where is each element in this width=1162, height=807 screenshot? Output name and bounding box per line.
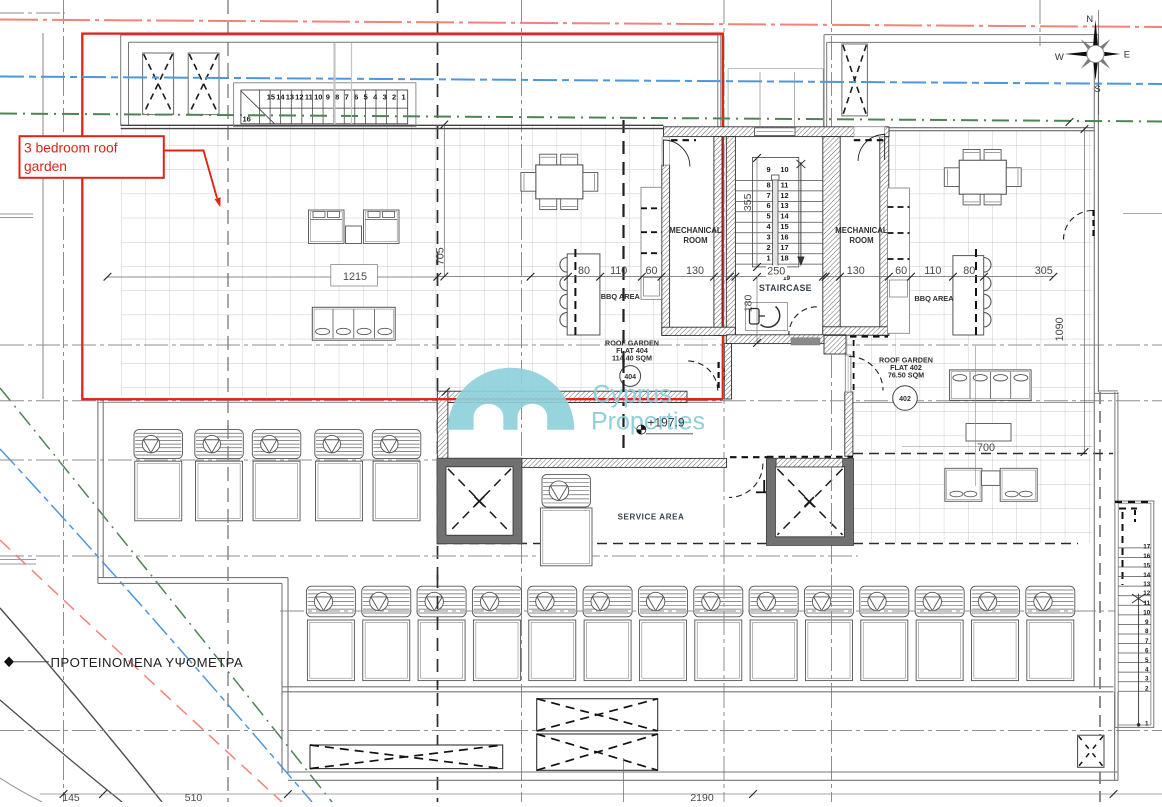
svg-text:60: 60 <box>895 265 907 277</box>
svg-text:9: 9 <box>766 165 770 174</box>
svg-text:7: 7 <box>766 191 770 200</box>
svg-text:11: 11 <box>1143 600 1150 607</box>
svg-text:705: 705 <box>435 247 447 265</box>
svg-text:110: 110 <box>924 265 941 277</box>
svg-text:402: 402 <box>899 396 911 403</box>
svg-text:12: 12 <box>780 191 788 200</box>
svg-text:ROOM: ROOM <box>849 236 873 245</box>
svg-text:17: 17 <box>780 243 788 252</box>
svg-text:6: 6 <box>354 92 358 101</box>
svg-text:ROOM: ROOM <box>683 236 707 245</box>
svg-text:garden: garden <box>24 159 67 174</box>
svg-text:2: 2 <box>392 92 396 101</box>
svg-text:5: 5 <box>364 92 368 101</box>
svg-text:4: 4 <box>1145 667 1149 674</box>
svg-text:305: 305 <box>1035 265 1053 277</box>
svg-text:14: 14 <box>1143 572 1151 579</box>
svg-text:12: 12 <box>295 92 303 101</box>
svg-text:BBQ AREA: BBQ AREA <box>914 294 954 303</box>
svg-text:3: 3 <box>766 233 770 242</box>
svg-text:16: 16 <box>1143 553 1151 560</box>
svg-text:130: 130 <box>847 265 865 277</box>
svg-text:1: 1 <box>402 92 406 101</box>
svg-text:7: 7 <box>345 92 349 101</box>
svg-text:S: S <box>1094 84 1100 95</box>
svg-text:+197.9: +197.9 <box>648 416 685 430</box>
svg-text:13: 13 <box>286 92 294 101</box>
svg-text:14: 14 <box>780 212 789 221</box>
svg-text:W: W <box>1055 52 1064 63</box>
svg-text:9: 9 <box>326 92 330 101</box>
svg-text:14: 14 <box>276 92 285 101</box>
svg-text:180: 180 <box>743 294 755 312</box>
svg-text:2190: 2190 <box>690 792 714 802</box>
svg-text:12: 12 <box>1143 590 1151 597</box>
svg-text:130: 130 <box>686 265 704 277</box>
svg-text:E: E <box>1124 50 1130 61</box>
svg-text:15: 15 <box>267 92 275 101</box>
svg-text:SERVICE AREA: SERVICE AREA <box>618 513 685 522</box>
svg-text:N: N <box>1086 14 1093 25</box>
svg-text:5: 5 <box>766 212 770 221</box>
svg-text:16: 16 <box>780 233 788 242</box>
svg-text:404: 404 <box>624 374 636 381</box>
svg-text:2: 2 <box>766 243 770 252</box>
svg-text:1215: 1215 <box>343 271 367 283</box>
svg-text:3 bedroom roof: 3 bedroom roof <box>24 141 118 156</box>
svg-text:1: 1 <box>1145 720 1149 727</box>
svg-text:114.40 SQM: 114.40 SQM <box>612 354 652 363</box>
svg-text:10: 10 <box>314 92 322 101</box>
svg-text:510: 510 <box>185 792 203 802</box>
svg-text:STAIRCASE: STAIRCASE <box>759 283 812 293</box>
svg-text:17: 17 <box>1143 543 1151 550</box>
svg-text:5: 5 <box>1145 657 1149 664</box>
svg-text:10: 10 <box>780 165 788 174</box>
svg-text:11: 11 <box>781 180 789 189</box>
svg-text:60: 60 <box>645 265 657 277</box>
svg-text:13: 13 <box>1143 581 1151 588</box>
svg-text:11: 11 <box>305 92 313 101</box>
svg-text:700: 700 <box>977 442 995 454</box>
svg-text:10: 10 <box>1143 610 1151 617</box>
svg-text:7: 7 <box>1145 638 1149 645</box>
svg-text:1: 1 <box>766 254 770 263</box>
svg-text:145: 145 <box>62 792 80 802</box>
svg-text:15: 15 <box>780 222 788 231</box>
svg-text:3: 3 <box>1145 676 1149 683</box>
svg-text:18: 18 <box>780 254 788 263</box>
svg-text:8: 8 <box>1145 628 1149 635</box>
svg-text:250: 250 <box>767 266 785 278</box>
svg-text:3: 3 <box>383 92 387 101</box>
svg-text:2: 2 <box>1145 686 1149 693</box>
svg-text:110: 110 <box>610 265 627 277</box>
svg-text:15: 15 <box>1143 563 1151 570</box>
svg-text:6: 6 <box>1145 648 1149 655</box>
svg-text:1090: 1090 <box>1054 317 1066 341</box>
svg-text:MECHANICAL: MECHANICAL <box>835 226 888 235</box>
svg-text:BBQ AREA: BBQ AREA <box>601 292 641 301</box>
svg-text:ΠΡΟΤΕΙΝΟΜΕΝΑ ΥΨΟΜΕΤΡΑ: ΠΡΟΤΕΙΝΟΜΕΝΑ ΥΨΟΜΕΤΡΑ <box>51 655 244 670</box>
svg-text:6: 6 <box>766 201 770 210</box>
svg-text:8: 8 <box>766 180 770 189</box>
svg-text:9: 9 <box>1145 619 1149 626</box>
svg-text:80: 80 <box>963 265 975 277</box>
svg-text:8: 8 <box>335 92 339 101</box>
svg-text:80: 80 <box>578 265 590 277</box>
svg-text:355: 355 <box>742 193 754 211</box>
svg-text:MECHANICAL: MECHANICAL <box>669 226 722 235</box>
svg-text:76.50 SQM: 76.50 SQM <box>888 371 924 380</box>
svg-text:13: 13 <box>780 201 788 210</box>
